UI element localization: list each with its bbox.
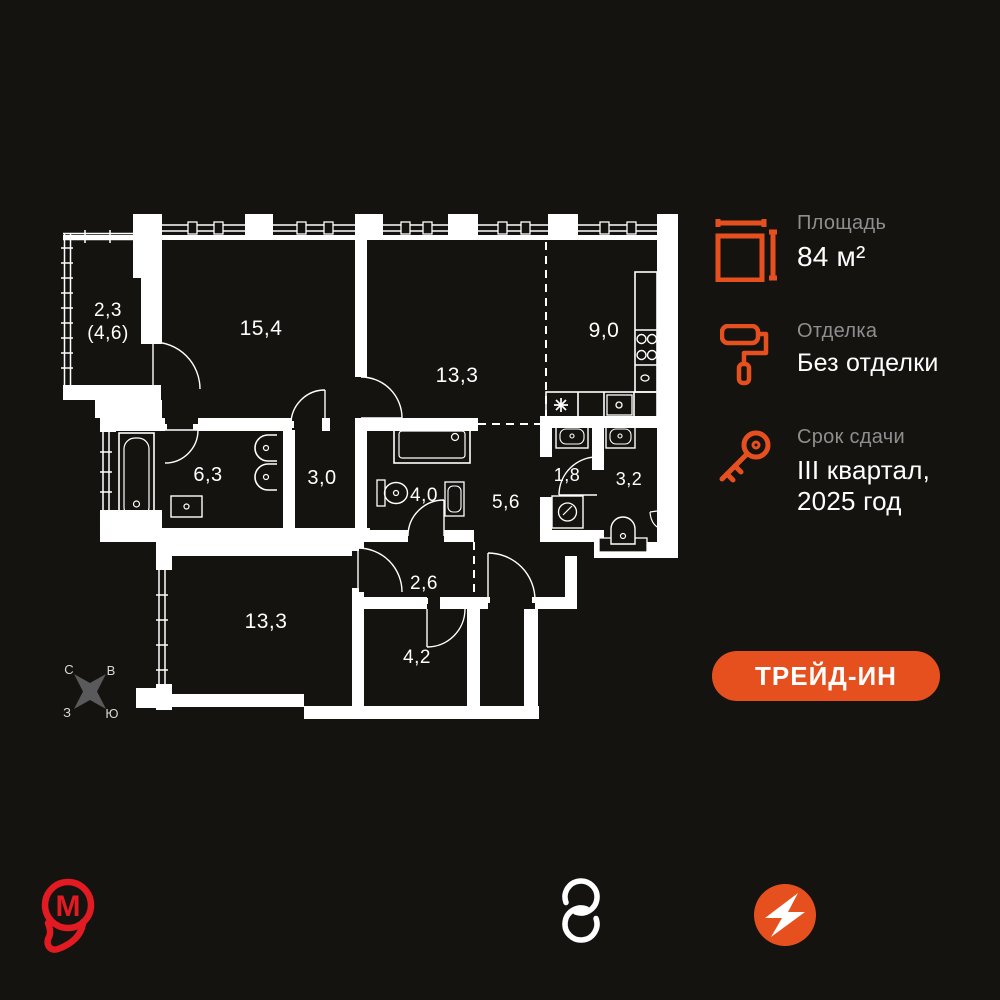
completion-value: III квартал, 2025 год: [797, 455, 930, 517]
area-value: 84 м²: [797, 241, 886, 273]
key-icon: [714, 429, 774, 489]
footer: М Звенигородская(2025) SYDNEY CITY ФСК: [0, 860, 1000, 970]
vent-mark-icon: [554, 398, 568, 412]
compass-ne: В: [107, 663, 116, 678]
completion-label: Срок сдачи: [797, 426, 930, 449]
finishing-label: Отделка: [797, 320, 939, 343]
room-label: 13,3: [436, 364, 479, 387]
toilet-icon: [611, 517, 635, 544]
walls: [63, 214, 678, 719]
compass-star: [74, 674, 106, 709]
basin-icon: [255, 464, 277, 490]
sydney-city-logo-icon: [552, 868, 610, 952]
room-label: 2,6: [410, 573, 438, 594]
room-label: 4,2: [403, 647, 431, 668]
room-label: 6,3: [193, 464, 222, 486]
compass-sw: З: [63, 705, 71, 720]
finishing-value: Без отделки: [797, 349, 939, 378]
metro-letter: М: [56, 890, 81, 923]
room-label: 1,8: [554, 465, 581, 485]
room-label: 15,4: [240, 317, 283, 340]
room-label: 4,0: [410, 485, 438, 506]
basin-icon: [255, 435, 277, 461]
washing-machine-icon: [552, 496, 583, 528]
compass-se: Ю: [105, 706, 118, 721]
room-label: 2,3: [94, 300, 122, 321]
area-icon: [714, 218, 778, 282]
compass-nw: С: [64, 662, 73, 677]
area-label: Площадь: [797, 212, 886, 235]
room-label: 5,6: [492, 492, 520, 513]
kitchen-sink-icon: [607, 395, 632, 415]
room-label: 13,3: [245, 610, 288, 633]
metro-pin-icon: М: [36, 876, 98, 962]
apartment-card: 2,3 (4,6) 15,4 13,3 9,0 6,3 3,0 4,0 5,6 …: [0, 0, 1000, 1000]
compass-icon: С В З Ю: [63, 662, 119, 721]
zone-dashed-lines: [474, 242, 546, 597]
paint-roller-icon: [720, 324, 770, 386]
room-label: 3,2: [616, 469, 643, 489]
fixtures: [119, 272, 664, 552]
room-label: (4,6): [87, 323, 129, 344]
room-label: 3,0: [307, 467, 336, 489]
stove-icon: [637, 335, 657, 360]
room-label: 9,0: [589, 319, 620, 342]
kitchen-counter: [635, 272, 657, 392]
trade-in-button[interactable]: ТРЕЙД-ИН: [712, 651, 940, 701]
fsk-logo-icon: [753, 883, 817, 947]
